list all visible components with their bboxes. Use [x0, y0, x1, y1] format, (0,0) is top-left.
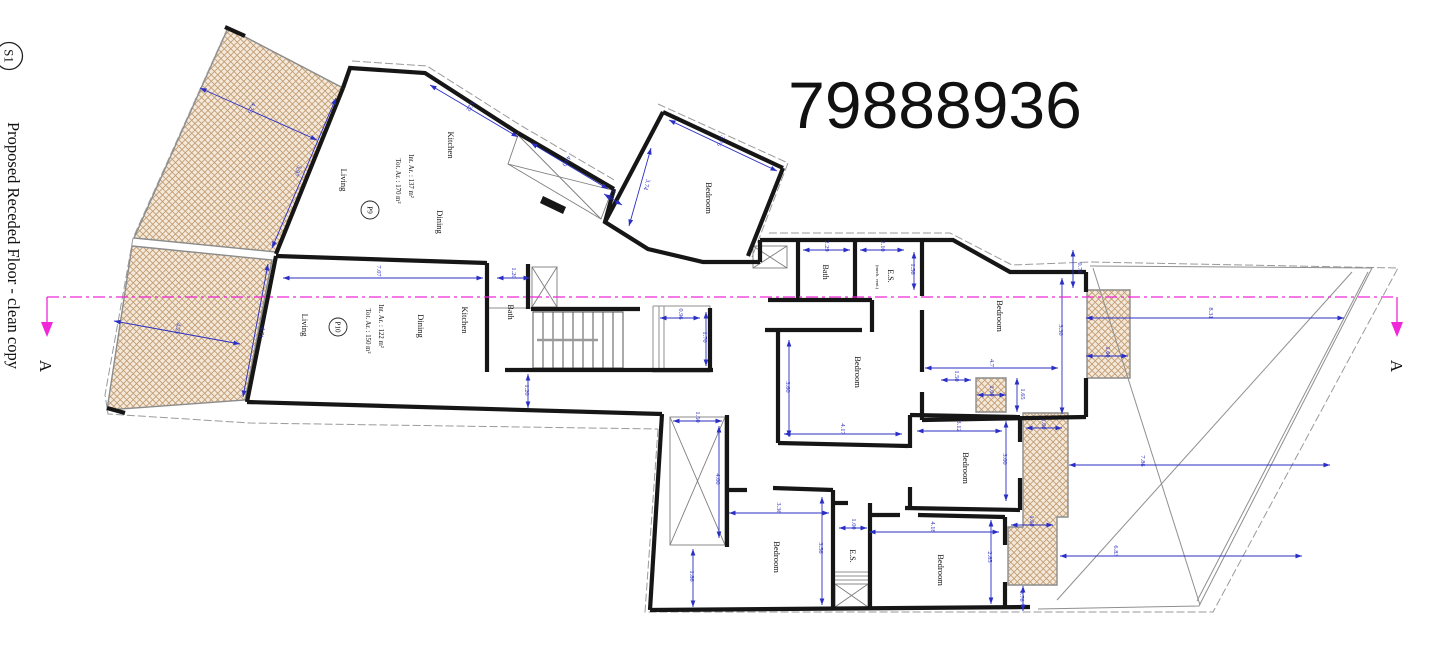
dimension-label: 7.07	[375, 265, 382, 277]
section-arrow-icon	[1391, 322, 1403, 337]
terrace-hatch	[107, 246, 272, 410]
room-label: Tot. Ar. : 170 m²	[394, 159, 401, 204]
room-label: Bedroom	[995, 300, 1005, 332]
room-label: Living	[339, 169, 349, 192]
dimension-label: 2.29	[823, 240, 830, 251]
dimension-label: 4.18	[929, 521, 936, 532]
section-label-right: A	[1387, 360, 1406, 373]
staircase	[533, 312, 623, 368]
terrace-hatch	[1008, 413, 1068, 585]
dimension-label: 2.85	[986, 551, 993, 562]
wall	[905, 508, 1020, 510]
wall	[748, 168, 783, 256]
room-label: E.S.	[886, 269, 895, 282]
wall	[650, 607, 1030, 610]
detail-line	[1093, 268, 1200, 605]
dimension-label: 1.00	[1040, 418, 1047, 429]
room-label: Bedroom	[961, 452, 971, 484]
dimension-label: 1.20	[510, 267, 517, 278]
dimension-label: 1.65	[1019, 388, 1026, 399]
dimension-label: 0.76	[1076, 262, 1083, 273]
dimension-label: 3.12	[955, 420, 962, 431]
dimension-label: 3.30	[1057, 324, 1064, 335]
door-leaf	[540, 196, 566, 214]
dimension-label: 8.31	[1207, 307, 1214, 318]
wall	[276, 256, 487, 263]
wall	[343, 68, 518, 133]
room-label: Kitchen	[460, 307, 470, 335]
room-label: Bath	[506, 304, 515, 319]
wall	[605, 112, 663, 222]
room-label: Bedroom	[936, 554, 946, 586]
dimension-label: 6.83	[1112, 545, 1119, 556]
wall	[247, 402, 662, 414]
room-label: Tot. Ar. : 150 m²	[364, 309, 371, 354]
room-label: (mech. vent.)	[875, 265, 880, 290]
drawing-number: 79888936	[788, 68, 1082, 142]
wall	[605, 189, 760, 262]
dimension-label: 0.96	[677, 308, 684, 319]
dimension-line	[430, 85, 518, 137]
dimension-label: 7.86	[1139, 455, 1146, 466]
room-label: Living	[300, 314, 310, 337]
dimension-label: 1.60	[1104, 346, 1111, 357]
dimension-label: 1.50	[694, 411, 701, 422]
dimension-label: 1.50	[953, 370, 960, 381]
room-label: Bedroom	[704, 182, 714, 214]
room-label: Int. Ar. : 137 m²	[407, 154, 414, 198]
boundary-line	[658, 104, 788, 257]
terrace-hatch	[134, 28, 343, 252]
apartment-tag-label: P10	[334, 322, 342, 333]
room-label: Bedroom	[772, 541, 782, 573]
section-arrow-icon	[41, 322, 53, 337]
dimension-label: 1.00	[850, 518, 857, 529]
dimension-label: 1.86	[688, 570, 695, 581]
apartment-tag-label: P9	[366, 206, 374, 214]
dimension-label: 1.20	[523, 384, 530, 395]
dimension-label: 4.00	[714, 473, 721, 484]
detail-line	[1197, 272, 1368, 601]
dimension-label: 4.17	[839, 423, 846, 435]
room-label: Bath	[821, 264, 830, 279]
section-label-left: A	[36, 360, 55, 373]
dimension-label: 1.00	[988, 385, 995, 396]
room-label: Kitchen	[446, 132, 456, 160]
dimension-label: 3.60	[784, 381, 791, 392]
dimension-label: 3.56	[817, 542, 824, 553]
dimension-label: 3.00	[1001, 453, 1008, 464]
room-label: Dining	[435, 210, 445, 234]
drawing-sheet: 4.255.974.254.717.073.224.001.503.743.76…	[0, 0, 1440, 663]
wall	[773, 488, 833, 490]
dimension-label: 1.70	[701, 331, 708, 342]
dimension-label: 3.36	[775, 502, 782, 513]
dimension-label: 2.10	[879, 240, 886, 251]
room-label: E.S.	[848, 549, 857, 562]
room-label: Int. Ar. : 122 m²	[377, 304, 384, 348]
room-label: Dining	[416, 314, 426, 338]
boundary-line	[352, 61, 616, 181]
drawing-title: Proposed Receded Floor - clean copy	[4, 122, 23, 370]
dimension-label: 1.60	[1028, 515, 1035, 526]
sheet-marker-label: S1	[2, 49, 17, 63]
wall	[910, 415, 1020, 417]
dimension-label: 1.56	[909, 263, 916, 274]
dimension-label: 4.7	[988, 359, 995, 368]
wall	[918, 515, 1005, 517]
room-label: Bedroom	[853, 356, 863, 388]
shaft-box	[835, 584, 868, 607]
shaft-box	[532, 267, 557, 307]
dimension-label: 3.74	[641, 178, 651, 191]
dimension-label: 0.76	[1018, 590, 1025, 601]
wall	[778, 443, 908, 446]
floor-plan-svg: 4.255.974.254.717.073.224.001.503.743.76…	[0, 0, 1440, 663]
